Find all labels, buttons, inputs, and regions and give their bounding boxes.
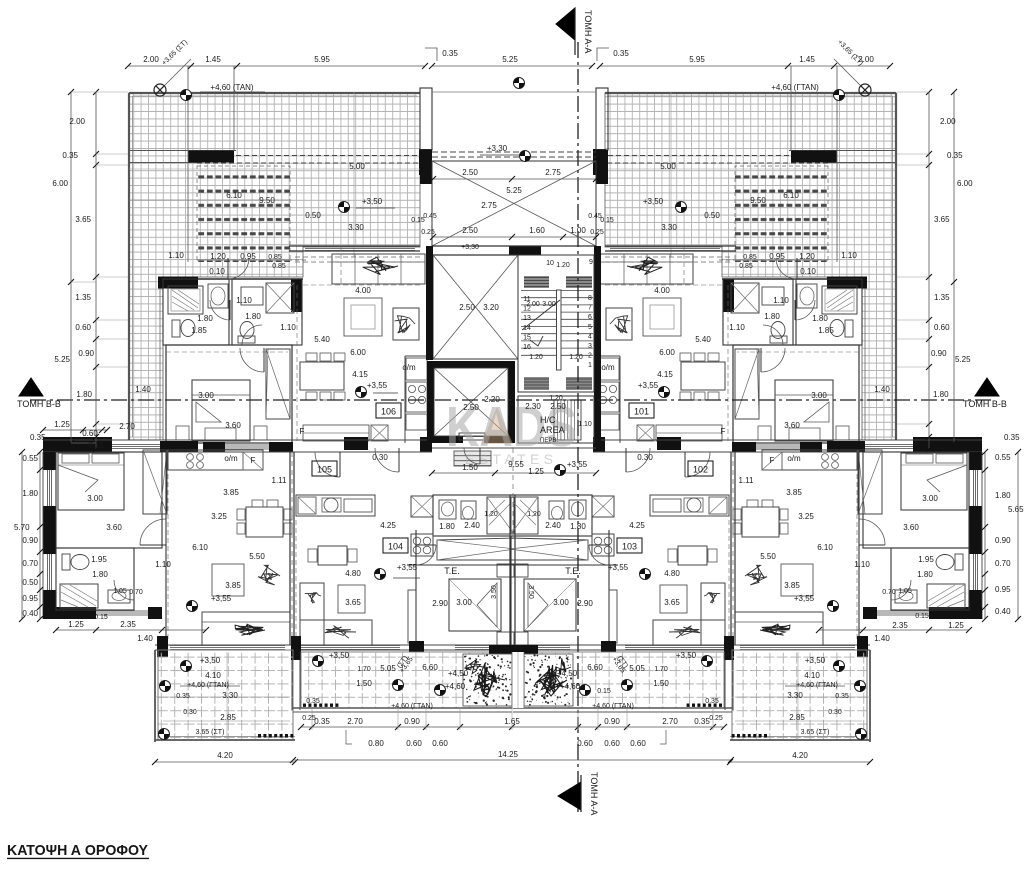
svg-text:106: 106	[381, 407, 396, 417]
svg-text:4.00: 4.00	[355, 286, 371, 295]
svg-text:0.90: 0.90	[604, 717, 620, 726]
svg-text:9.55: 9.55	[508, 460, 524, 469]
svg-text:5.25: 5.25	[506, 186, 522, 195]
svg-text:5.25: 5.25	[54, 355, 70, 364]
svg-text:1.95: 1.95	[918, 555, 934, 564]
svg-text:1.40: 1.40	[135, 385, 151, 394]
svg-text:5.00: 5.00	[660, 162, 676, 171]
svg-text:3.65: 3.65	[345, 598, 361, 607]
svg-text:1.35: 1.35	[934, 293, 950, 302]
svg-text:4.00: 4.00	[654, 286, 670, 295]
svg-text:T.E.: T.E.	[444, 566, 460, 576]
svg-text:14: 14	[523, 325, 531, 332]
svg-text:3.60: 3.60	[106, 523, 122, 532]
svg-text:1.80: 1.80	[245, 312, 261, 321]
svg-text:1.10: 1.10	[280, 323, 296, 332]
svg-text:4.10: 4.10	[804, 671, 820, 680]
svg-text:0.35: 0.35	[705, 698, 719, 705]
svg-text:3.00: 3.00	[811, 391, 827, 400]
svg-text:2.30: 2.30	[525, 402, 541, 411]
svg-text:0.70: 0.70	[22, 559, 38, 568]
svg-text:0.90: 0.90	[995, 536, 1011, 545]
svg-text:0.30: 0.30	[828, 709, 842, 716]
svg-text:3.65: 3.65	[75, 215, 91, 224]
svg-text:1.25: 1.25	[54, 420, 70, 429]
svg-text:1.50: 1.50	[653, 679, 669, 688]
svg-text:3.85: 3.85	[225, 581, 241, 590]
svg-text:2.70: 2.70	[119, 422, 135, 431]
svg-text:+4,60 (ΓΤΑΝ): +4,60 (ΓΤΑΝ)	[187, 682, 229, 689]
svg-text:2.00: 2.00	[940, 117, 956, 126]
svg-text:101: 101	[634, 407, 649, 417]
svg-text:+3,55: +3,55	[397, 563, 418, 572]
svg-text:ΤΟΜΗ Α-Α: ΤΟΜΗ Α-Α	[589, 772, 599, 815]
svg-text:1.20: 1.20	[210, 252, 226, 261]
svg-text:3.00: 3.00	[542, 301, 556, 308]
svg-text:1.11: 1.11	[272, 476, 288, 485]
svg-text:0.40: 0.40	[995, 607, 1011, 616]
svg-text:5.50: 5.50	[760, 552, 776, 561]
svg-text:1.10: 1.10	[236, 296, 252, 305]
svg-text:ΠΕΡΒ.: ΠΕΡΒ.	[540, 438, 558, 444]
svg-text:1,20: 1,20	[484, 511, 498, 518]
svg-text:F: F	[721, 427, 726, 436]
svg-text:4.20: 4.20	[792, 751, 808, 760]
svg-text:F: F	[770, 456, 775, 465]
svg-text:ΤΟΜΗ Β-Β: ΤΟΜΗ Β-Β	[17, 399, 61, 409]
svg-text:0.90: 0.90	[22, 536, 38, 545]
svg-text:2.90: 2.90	[432, 599, 448, 608]
svg-text:5.40: 5.40	[314, 335, 330, 344]
svg-text:o/m: o/m	[787, 454, 801, 463]
svg-text:0.25: 0.25	[709, 715, 723, 722]
svg-text:+3,50: +3,50	[643, 197, 664, 206]
svg-text:2.35: 2.35	[892, 621, 908, 630]
svg-text:1.80: 1.80	[92, 570, 108, 579]
svg-text:0.35: 0.35	[306, 698, 320, 705]
svg-text:0.35: 0.35	[62, 151, 78, 160]
svg-text:+4,50: +4,50	[448, 669, 469, 678]
svg-text:+4,60 (ΓΤΑΝ): +4,60 (ΓΤΑΝ)	[771, 83, 819, 92]
svg-text:3.30: 3.30	[222, 691, 238, 700]
svg-text:4.15: 4.15	[352, 370, 368, 379]
svg-text:7: 7	[588, 305, 592, 312]
svg-text:1.80: 1.80	[22, 489, 38, 498]
svg-text:3.85: 3.85	[223, 488, 239, 497]
svg-text:0.85: 0.85	[739, 263, 753, 270]
svg-text:3.60: 3.60	[225, 421, 241, 430]
svg-text:1.80: 1.80	[812, 314, 828, 323]
svg-text:1.80: 1.80	[995, 491, 1011, 500]
svg-text:+4,60 (ΓΤΑΝ): +4,60 (ΓΤΑΝ)	[391, 703, 433, 710]
svg-text:0.35: 0.35	[613, 49, 629, 58]
svg-text:0.35: 0.35	[442, 49, 458, 58]
svg-text:2.40: 2.40	[464, 521, 480, 530]
svg-text:3.30: 3.30	[348, 223, 364, 232]
svg-text:1.70: 1.70	[357, 666, 371, 673]
svg-text:+3,55: +3,55	[367, 381, 388, 390]
svg-text:14.25: 14.25	[498, 750, 519, 759]
svg-text:5.25: 5.25	[955, 355, 971, 364]
svg-text:1.10: 1.10	[841, 251, 857, 260]
svg-text:2.00: 2.00	[143, 55, 159, 64]
svg-text:+3,55: +3,55	[608, 563, 629, 572]
svg-text:2.50: 2.50	[463, 403, 479, 412]
svg-text:o/m: o/m	[224, 454, 238, 463]
svg-text:0.50: 0.50	[22, 578, 38, 587]
svg-text:+4,60: +4,60	[445, 682, 466, 691]
svg-text:1.80: 1.80	[197, 314, 213, 323]
svg-text:0.85: 0.85	[272, 263, 286, 270]
svg-text:0.55: 0.55	[995, 453, 1011, 462]
svg-text:F: F	[251, 456, 256, 465]
svg-text:1.40: 1.40	[874, 385, 890, 394]
svg-text:0.35: 0.35	[947, 151, 963, 160]
svg-text:102: 102	[693, 465, 708, 475]
svg-text:0.90: 0.90	[931, 349, 947, 358]
svg-text:2.50: 2.50	[462, 168, 478, 177]
svg-text:6.60: 6.60	[587, 663, 603, 672]
svg-text:+3,50: +3,50	[200, 656, 221, 665]
svg-text:1.80: 1.80	[76, 390, 92, 399]
svg-text:1.10: 1.10	[729, 323, 745, 332]
svg-text:4.80: 4.80	[345, 569, 361, 578]
svg-text:1.25: 1.25	[528, 467, 544, 476]
svg-text:6.00: 6.00	[659, 348, 675, 357]
svg-text:2.00: 2.00	[69, 117, 85, 126]
svg-text:1.50: 1.50	[462, 463, 478, 472]
svg-text:+4,60 (ΤΑΝ): +4,60 (ΤΑΝ)	[210, 83, 254, 92]
svg-text:0.30: 0.30	[637, 453, 653, 462]
svg-text:5.40: 5.40	[695, 335, 711, 344]
svg-text:0.40: 0.40	[22, 609, 38, 618]
svg-text:3.65: 3.65	[664, 598, 680, 607]
svg-text:0.60: 0.60	[577, 739, 593, 748]
svg-text:0.60: 0.60	[75, 323, 91, 332]
svg-text:+3,55: +3,55	[211, 594, 232, 603]
svg-text:0.60: 0.60	[934, 323, 950, 332]
svg-text:1.80: 1.80	[570, 522, 586, 531]
svg-text:10: 10	[546, 260, 554, 267]
svg-text:+3,50: +3,50	[805, 656, 826, 665]
svg-text:4.15: 4.15	[657, 370, 673, 379]
svg-text:2.20: 2.20	[484, 395, 500, 404]
svg-text:1: 1	[588, 362, 592, 369]
svg-text:1.80: 1.80	[933, 390, 949, 399]
svg-text:1.00: 1.00	[570, 226, 586, 235]
svg-text:ΚΑΤΟΨΗ Α ΟΡΟΦΟΥ: ΚΑΤΟΨΗ Α ΟΡΟΦΟΥ	[7, 842, 148, 859]
svg-text:0.15: 0.15	[94, 614, 108, 621]
svg-text:0.55: 0.55	[22, 454, 38, 463]
svg-text:3.00: 3.00	[553, 598, 569, 607]
svg-text:5.70: 5.70	[14, 523, 30, 532]
svg-text:0.25: 0.25	[302, 715, 316, 722]
svg-text:3.30: 3.30	[787, 691, 803, 700]
svg-text:1.11: 1.11	[739, 476, 755, 485]
svg-text:0.50: 0.50	[305, 211, 321, 220]
svg-text:0.60: 0.60	[406, 739, 422, 748]
svg-text:6.10: 6.10	[817, 543, 833, 552]
svg-text:1.85: 1.85	[191, 326, 207, 335]
svg-text:0.15: 0.15	[597, 688, 611, 695]
svg-text:4.25: 4.25	[380, 521, 396, 530]
svg-text:2.35: 2.35	[120, 620, 136, 629]
svg-text:3: 3	[588, 343, 592, 350]
svg-text:0.30: 0.30	[183, 709, 197, 716]
svg-text:0.35: 0.35	[835, 693, 849, 700]
svg-text:2: 2	[588, 353, 592, 360]
svg-text:5: 5	[588, 324, 592, 331]
svg-text:8: 8	[588, 295, 592, 302]
svg-text:4.10: 4.10	[205, 671, 221, 680]
svg-text:1.80: 1.80	[439, 522, 455, 531]
svg-text:0.15: 0.15	[88, 441, 104, 450]
svg-text:0.25: 0.25	[590, 229, 604, 236]
svg-text:3.85: 3.85	[786, 488, 802, 497]
svg-text:o/m: o/m	[601, 363, 615, 372]
svg-text:1.20: 1.20	[799, 252, 815, 261]
svg-text:16: 16	[523, 344, 531, 351]
svg-text:3.50: 3.50	[527, 585, 534, 599]
svg-text:6.00: 6.00	[52, 179, 68, 188]
svg-text:0.95: 0.95	[995, 585, 1011, 594]
svg-text:1.60: 1.60	[529, 226, 545, 235]
svg-text:T.E.: T.E.	[565, 566, 581, 576]
svg-text:0.35: 0.35	[176, 693, 190, 700]
svg-text:ΤΟΜΗ Α-Α: ΤΟΜΗ Α-Α	[583, 10, 593, 53]
svg-text:+3,50: +3,50	[329, 651, 350, 660]
svg-text:o/m: o/m	[402, 363, 416, 372]
svg-text:2.90: 2.90	[577, 599, 593, 608]
svg-text:6.10: 6.10	[192, 543, 208, 552]
svg-text:1.25: 1.25	[68, 620, 84, 629]
svg-text:2.50: 2.50	[550, 402, 566, 411]
svg-text:2.70: 2.70	[662, 717, 678, 726]
svg-text:6.10: 6.10	[226, 191, 242, 200]
svg-text:1.45: 1.45	[799, 55, 815, 64]
svg-text:ΤΟΜΗ Β-Β: ΤΟΜΗ Β-Β	[963, 399, 1007, 409]
svg-text:+4,50: +4,50	[557, 669, 578, 678]
svg-text:3.25: 3.25	[211, 512, 227, 521]
svg-text:0.10: 0.10	[209, 267, 225, 276]
svg-text:0.70: 0.70	[995, 559, 1011, 568]
svg-text:3.20: 3.20	[483, 303, 499, 312]
svg-text:4.20: 4.20	[217, 751, 233, 760]
svg-text:3.25: 3.25	[798, 512, 814, 521]
svg-text:0.70: 0.70	[882, 589, 896, 596]
svg-text:+3,50: +3,50	[362, 197, 383, 206]
svg-text:3.00: 3.00	[87, 494, 103, 503]
svg-text:1,05: 1,05	[898, 588, 912, 595]
svg-text:5.95: 5.95	[314, 55, 330, 64]
svg-text:4.25: 4.25	[629, 521, 645, 530]
svg-text:0.35: 0.35	[1004, 433, 1020, 442]
svg-text:5.00: 5.00	[349, 162, 365, 171]
svg-text:3.60: 3.60	[784, 421, 800, 430]
svg-text:3.00: 3.00	[198, 391, 214, 400]
svg-text:5.65: 5.65	[1008, 505, 1024, 514]
svg-text:5.50: 5.50	[249, 552, 265, 561]
svg-text:1.45: 1.45	[205, 55, 221, 64]
svg-text:+3,55: +3,55	[567, 460, 588, 469]
svg-text:1.95: 1.95	[91, 555, 107, 564]
svg-text:3.50: 3.50	[491, 585, 498, 599]
svg-text:0.95: 0.95	[22, 594, 38, 603]
svg-text:6.00: 6.00	[350, 348, 366, 357]
svg-text:4: 4	[588, 333, 592, 340]
svg-text:0.25: 0.25	[421, 229, 435, 236]
svg-text:4.80: 4.80	[664, 569, 680, 578]
svg-text:1.40: 1.40	[874, 634, 890, 643]
svg-text:103: 103	[622, 542, 637, 552]
svg-text:0.85: 0.85	[268, 254, 282, 261]
svg-text:2.40: 2.40	[545, 521, 561, 530]
svg-text:2.75: 2.75	[545, 168, 561, 177]
svg-text:9.50: 9.50	[750, 196, 766, 205]
svg-text:AREA: AREA	[540, 425, 565, 435]
svg-text:2.00: 2.00	[526, 301, 540, 308]
svg-text:0.35: 0.35	[694, 717, 710, 726]
svg-text:0.60: 0.60	[432, 739, 448, 748]
svg-text:15: 15	[523, 334, 531, 341]
svg-text:1.80: 1.80	[764, 312, 780, 321]
svg-text:6.00: 6.00	[957, 179, 973, 188]
svg-text:0.60: 0.60	[630, 739, 646, 748]
svg-text:0.95: 0.95	[240, 252, 256, 261]
svg-text:1.65: 1.65	[504, 717, 520, 726]
svg-text:1.20: 1.20	[556, 262, 570, 269]
svg-text:+3,55: +3,55	[794, 594, 815, 603]
svg-text:1.20: 1.20	[569, 354, 583, 361]
svg-text:+4,60 (ΓΤΑΝ): +4,60 (ΓΤΑΝ)	[796, 682, 838, 689]
svg-text:1.70: 1.70	[654, 666, 668, 673]
svg-text:1.10: 1.10	[773, 296, 789, 305]
svg-text:0.80: 0.80	[368, 739, 384, 748]
svg-text:+3,55: +3,55	[638, 381, 659, 390]
svg-text:9: 9	[589, 259, 593, 266]
svg-text:5.05: 5.05	[629, 664, 645, 673]
svg-text:0.50: 0.50	[704, 211, 720, 220]
svg-text:0.90: 0.90	[404, 717, 420, 726]
svg-text:1.80: 1.80	[917, 570, 933, 579]
svg-text:F: F	[300, 427, 305, 436]
svg-text:0.60: 0.60	[604, 739, 620, 748]
svg-text:0.45: 0.45	[423, 213, 437, 220]
svg-text:6.60: 6.60	[422, 663, 438, 672]
svg-text:+3,30: +3,30	[487, 144, 508, 153]
svg-text:5.25: 5.25	[502, 55, 518, 64]
svg-text:+4,60: +4,60	[560, 682, 581, 691]
svg-text:104: 104	[388, 542, 403, 552]
svg-text:2.85: 2.85	[220, 713, 236, 722]
svg-text:6: 6	[588, 314, 592, 321]
svg-text:0.95: 0.95	[769, 252, 785, 261]
svg-text:1.10: 1.10	[168, 251, 184, 260]
svg-text:13: 13	[523, 315, 531, 322]
svg-text:+3,50: +3,50	[676, 651, 697, 660]
svg-text:105: 105	[317, 465, 332, 475]
svg-text:0.35: 0.35	[314, 717, 330, 726]
svg-text:3.65 (ΣΤ): 3.65 (ΣΤ)	[801, 729, 830, 736]
svg-text:9.50: 9.50	[259, 196, 275, 205]
svg-text:1,05: 1,05	[113, 588, 127, 595]
svg-text:+3,30: +3,30	[461, 244, 479, 251]
svg-text:1.10: 1.10	[578, 421, 592, 428]
svg-text:2.85: 2.85	[789, 713, 805, 722]
svg-text:1.35: 1.35	[75, 293, 91, 302]
svg-text:1.20: 1.20	[529, 354, 543, 361]
svg-text:1.10: 1.10	[854, 560, 870, 569]
svg-text:1.40: 1.40	[137, 634, 153, 643]
svg-text:2.50: 2.50	[459, 303, 475, 312]
svg-text:0.35: 0.35	[30, 433, 46, 442]
svg-text:1.50: 1.50	[356, 679, 372, 688]
svg-text:2.50: 2.50	[462, 226, 478, 235]
svg-text:6.10: 6.10	[783, 191, 799, 200]
svg-text:3.85: 3.85	[784, 581, 800, 590]
svg-text:2.70: 2.70	[347, 717, 363, 726]
svg-text:1,20: 1,20	[527, 511, 541, 518]
svg-text:0.85: 0.85	[743, 254, 757, 261]
svg-text:3.65 (ΣΤ): 3.65 (ΣΤ)	[196, 729, 225, 736]
svg-text:0.15: 0.15	[915, 613, 929, 620]
svg-text:3.60: 3.60	[903, 523, 919, 532]
svg-text:3.65: 3.65	[934, 215, 950, 224]
svg-text:3.00: 3.00	[456, 598, 472, 607]
svg-text:1.25: 1.25	[948, 621, 964, 630]
svg-text:+4,60 (ΓΤΑΝ): +4,60 (ΓΤΑΝ)	[592, 703, 634, 710]
svg-text:0.90: 0.90	[78, 349, 94, 358]
svg-text:0.60: 0.60	[82, 429, 98, 438]
svg-text:5.05: 5.05	[380, 664, 396, 673]
svg-text:0.15: 0.15	[600, 217, 614, 224]
svg-text:2.75: 2.75	[481, 201, 497, 210]
svg-text:3.00: 3.00	[922, 494, 938, 503]
svg-text:1.85: 1.85	[818, 326, 834, 335]
svg-text:H/C: H/C	[540, 415, 556, 425]
svg-text:1.10: 1.10	[155, 560, 171, 569]
svg-text:0.30: 0.30	[372, 453, 388, 462]
svg-text:0.10: 0.10	[800, 267, 816, 276]
svg-text:0.70: 0.70	[129, 589, 143, 596]
svg-text:0.15: 0.15	[411, 217, 425, 224]
svg-text:1.20: 1.20	[549, 395, 563, 402]
svg-text:3.30: 3.30	[661, 223, 677, 232]
svg-text:5.95: 5.95	[689, 55, 705, 64]
